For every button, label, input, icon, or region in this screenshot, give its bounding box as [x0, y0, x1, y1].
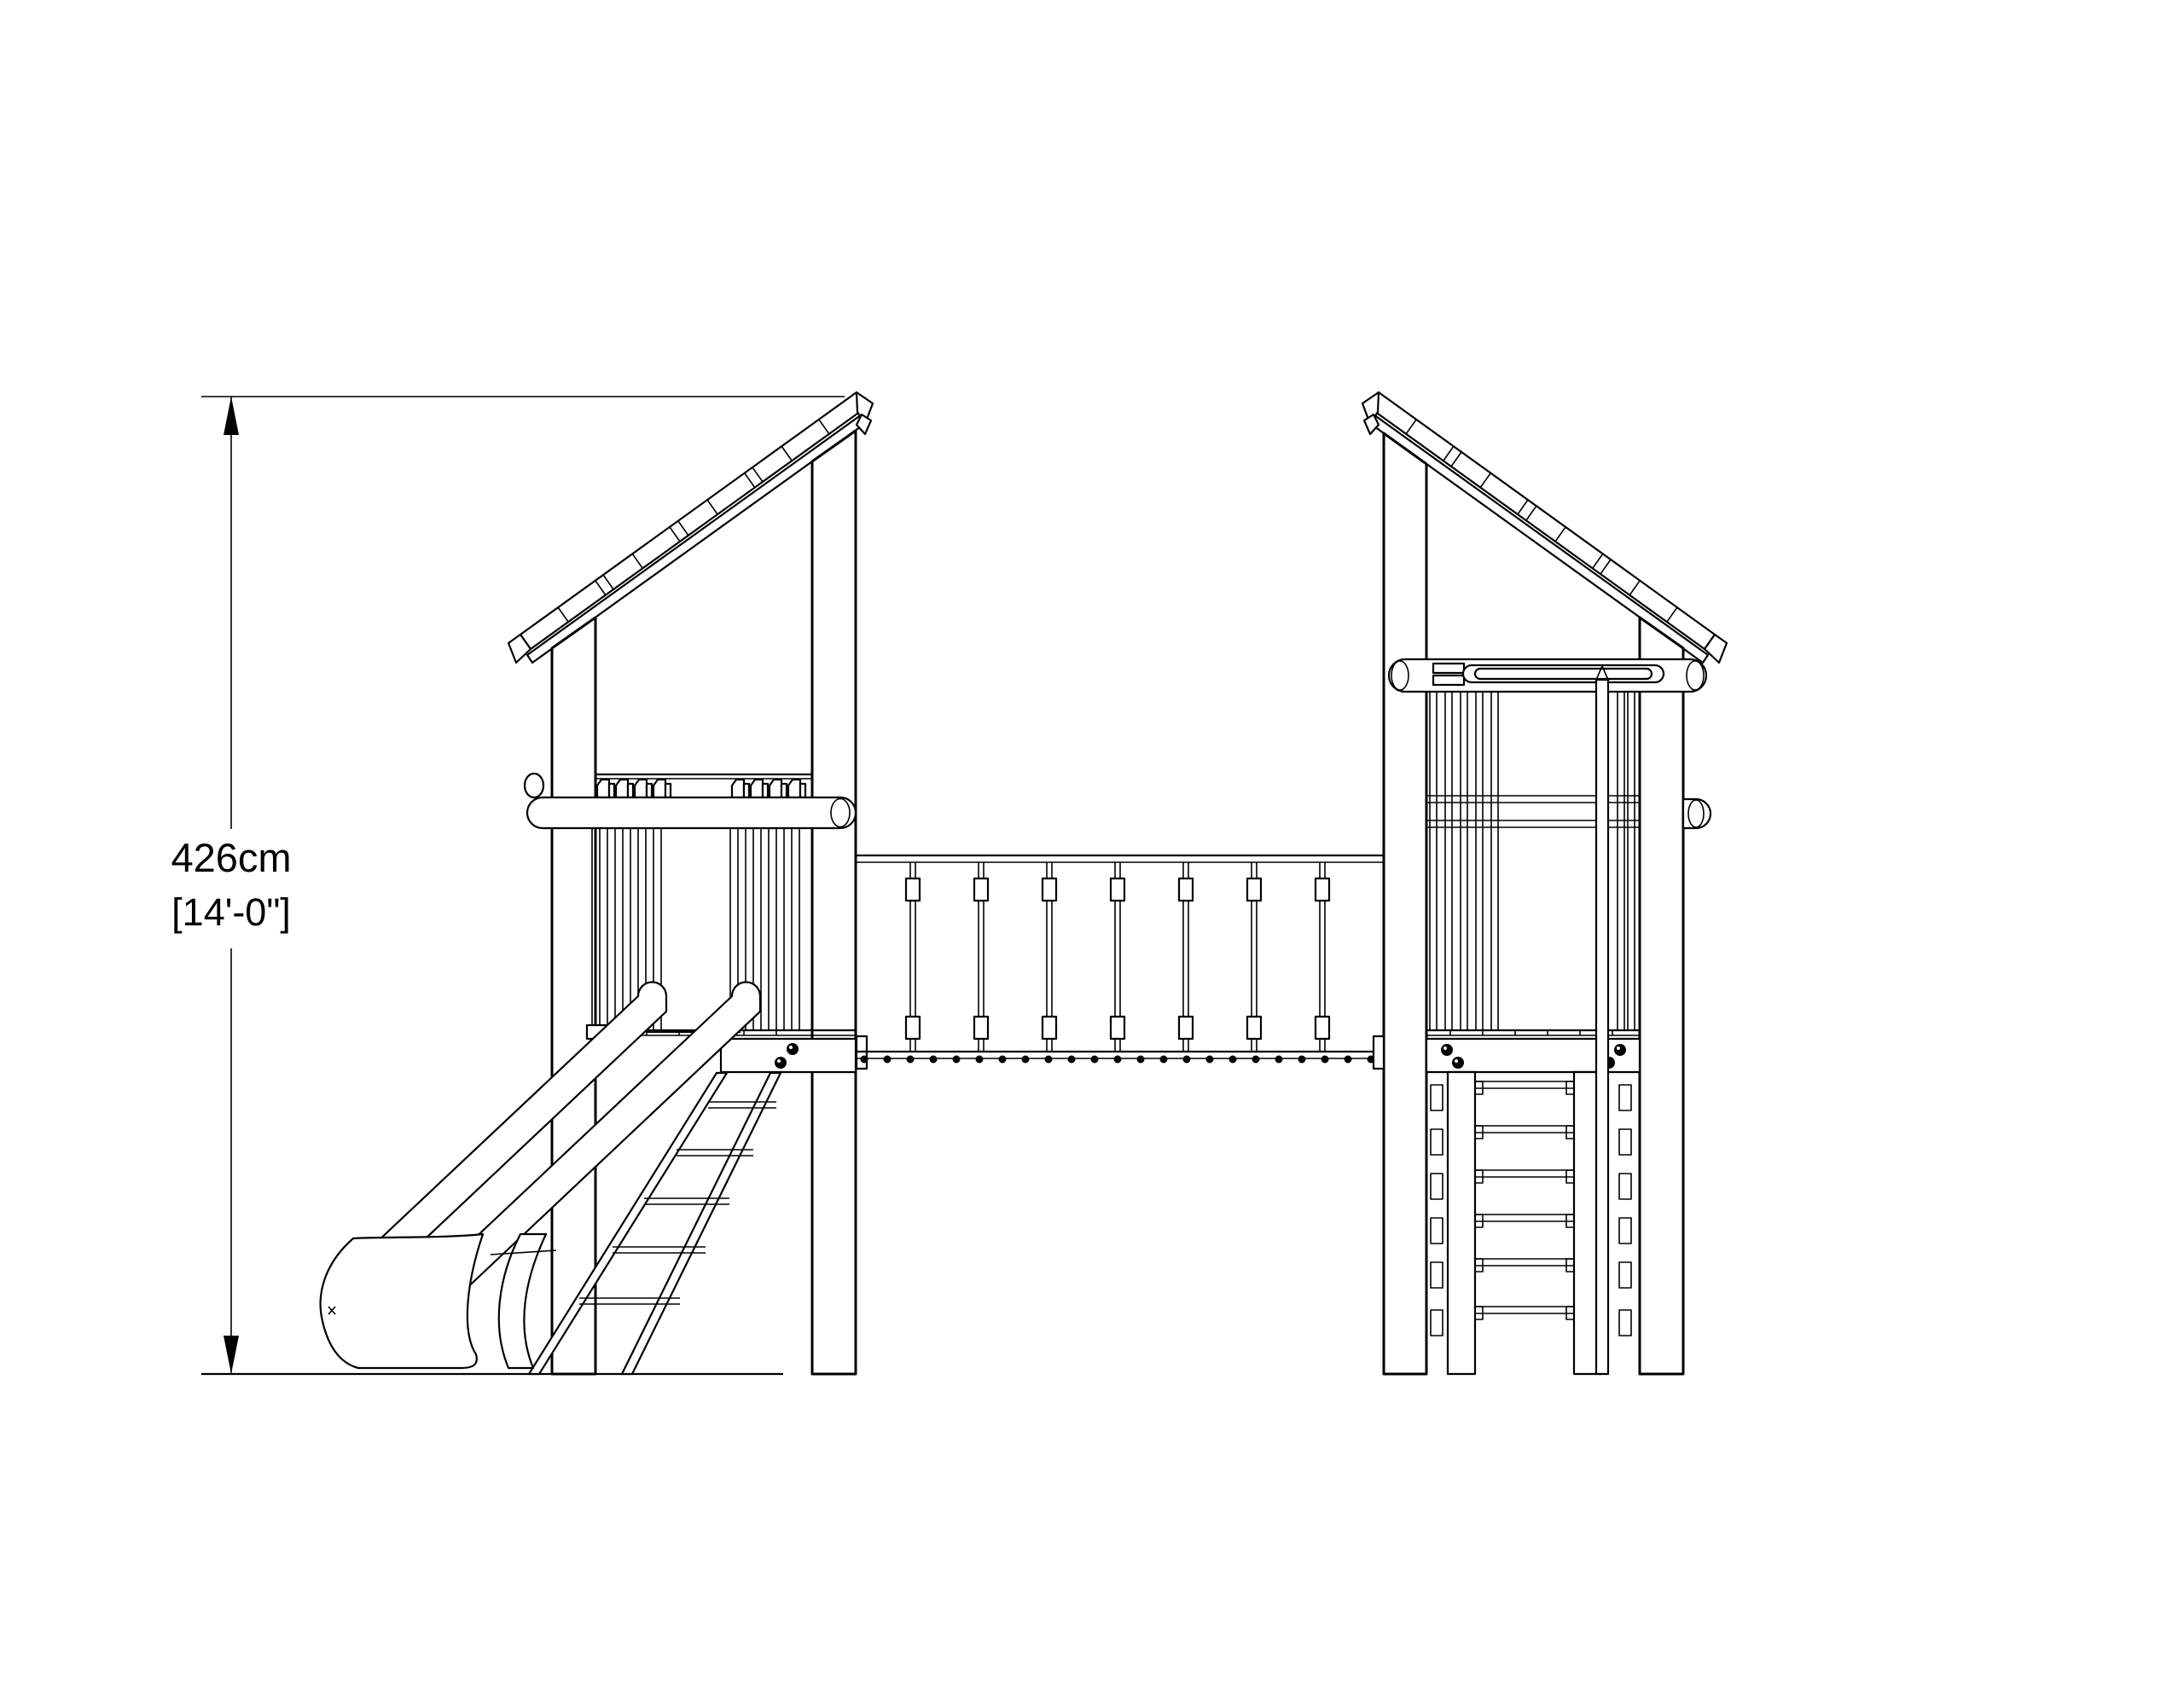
playset-elevation-drawing: 426cm [14'-0"]	[0, 0, 2184, 1687]
right-tower	[1362, 392, 1727, 1374]
drawing-canvas: 426cm [14'-0"]	[0, 0, 2184, 1687]
right-rail-log	[1389, 659, 1706, 692]
deck-pegs	[597, 780, 805, 797]
deck-log-end-cap	[525, 774, 543, 797]
dimension-metric-label: 426cm	[171, 835, 291, 880]
bridge-rope	[974, 862, 988, 1052]
left-tower-post-right	[812, 431, 856, 1374]
slide-exit-outer	[321, 1234, 483, 1368]
bridge-rope	[906, 862, 920, 1052]
step-rail-left	[1448, 1072, 1475, 1374]
rope-bridge	[856, 855, 1384, 1064]
bridge-rope	[1111, 862, 1124, 1052]
bridge-ropes	[906, 862, 1329, 1052]
bridge-walkway	[856, 1052, 1384, 1064]
dimension-arrow-down-icon	[224, 1336, 239, 1374]
dimension-arrow-up-icon	[224, 397, 239, 435]
right-tower-post-right	[1640, 617, 1683, 1374]
bridge-rope	[1316, 862, 1329, 1052]
slide	[321, 983, 760, 1369]
right-tower-post-left	[1384, 433, 1426, 1374]
side-log-stub	[1683, 799, 1711, 828]
dimension-imperial-label: [14'-0"]	[171, 890, 291, 934]
bridge-rope	[1179, 862, 1193, 1052]
left-tower	[321, 392, 873, 1374]
bridge-handrail	[856, 855, 1384, 862]
bridge-bracket-right	[1374, 1036, 1384, 1069]
left-balusters	[592, 828, 799, 1030]
grab-handle	[1433, 664, 1664, 685]
platform-beam	[721, 1039, 856, 1072]
walkway-bolts	[861, 1056, 1375, 1064]
left-tower-post-left	[552, 617, 595, 1374]
left-rail-log	[527, 797, 856, 828]
bridge-rope	[1247, 862, 1261, 1052]
bridge-rope	[1043, 862, 1056, 1052]
center-pole	[1596, 680, 1608, 1374]
